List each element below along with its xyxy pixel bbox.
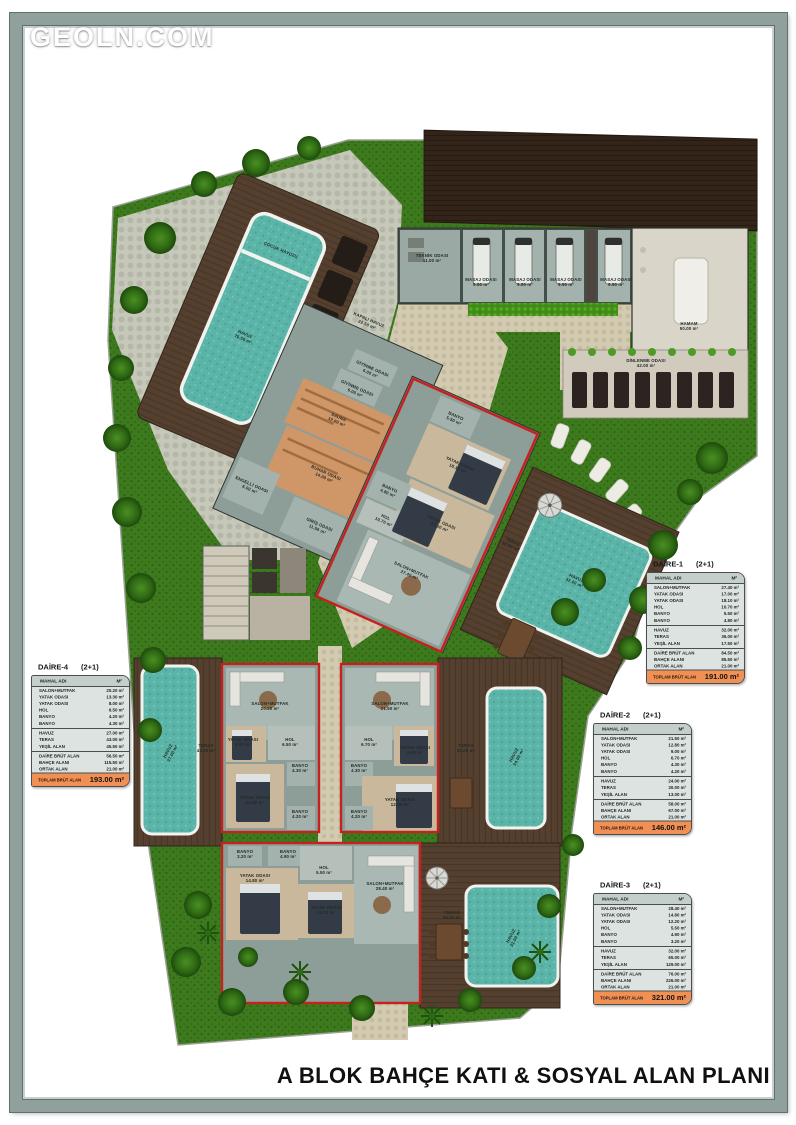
room-label: TERAS65.00 m² bbox=[443, 910, 462, 920]
floor-plan-page: { "watermark": "GEOLN.COM", "plan_title"… bbox=[0, 0, 796, 1125]
watermark: GEOLN.COM bbox=[30, 22, 215, 53]
room-label: BANYO4.30 m² bbox=[292, 763, 309, 773]
room-label: BANYO4.30 m² bbox=[351, 763, 368, 773]
room-label: BANYO3.20 m² bbox=[237, 849, 254, 859]
room-label: BANYO4.20 m² bbox=[351, 809, 368, 819]
building-core bbox=[203, 546, 310, 640]
elevator-1 bbox=[252, 548, 277, 569]
room-label: TERAS30.00 m² bbox=[457, 743, 476, 753]
unit-daire-4 bbox=[222, 664, 319, 832]
room-label: HAMAM50.00 m² bbox=[680, 321, 699, 331]
spa-top-wing bbox=[398, 228, 632, 316]
room-label: BANYO4.90 m² bbox=[280, 849, 297, 859]
roof-band bbox=[424, 130, 757, 231]
hedge-strip bbox=[468, 303, 618, 316]
page-title: A BLOK BAHÇE KATI & SOSYAL ALAN PLANI bbox=[277, 1063, 770, 1089]
umbrella-icon bbox=[426, 867, 448, 889]
hamam-block bbox=[632, 228, 748, 354]
elevator-2 bbox=[252, 572, 277, 593]
unit-daire-3-terrace bbox=[420, 843, 560, 1008]
room-label: BANYO4.20 m² bbox=[292, 809, 309, 819]
room-label: TERAS43.00 m² bbox=[197, 743, 216, 753]
site-plan-drawing: ÇOCUK HAVUZUHAVUZ75.50 m² bbox=[0, 0, 796, 1125]
